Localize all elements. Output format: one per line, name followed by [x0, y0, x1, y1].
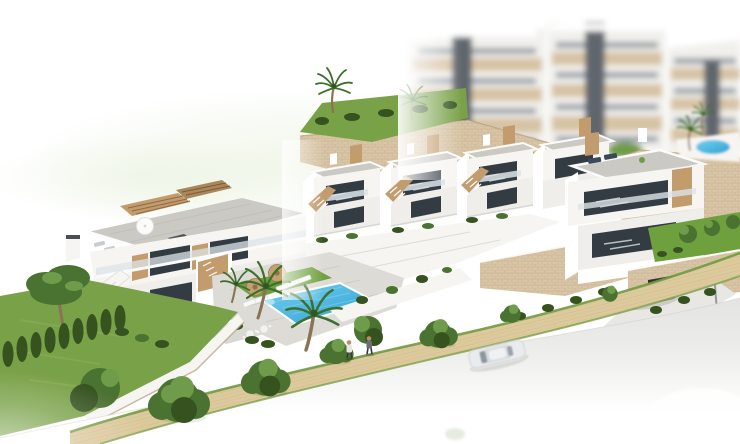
chimney	[66, 235, 80, 262]
apartment-block	[548, 22, 665, 152]
rooftop-chimney	[585, 132, 599, 156]
street-tree	[241, 359, 291, 397]
rooftop-chimney	[503, 125, 515, 145]
street-tree	[500, 304, 521, 322]
architectural-render	[0, 0, 740, 444]
wood-panel	[672, 167, 692, 208]
rooftop-chimney	[350, 144, 362, 164]
street-tree	[419, 319, 457, 348]
street-tree	[602, 286, 617, 302]
render-canvas	[0, 0, 740, 444]
background-pool	[696, 140, 730, 154]
roof-parasol	[137, 218, 154, 235]
